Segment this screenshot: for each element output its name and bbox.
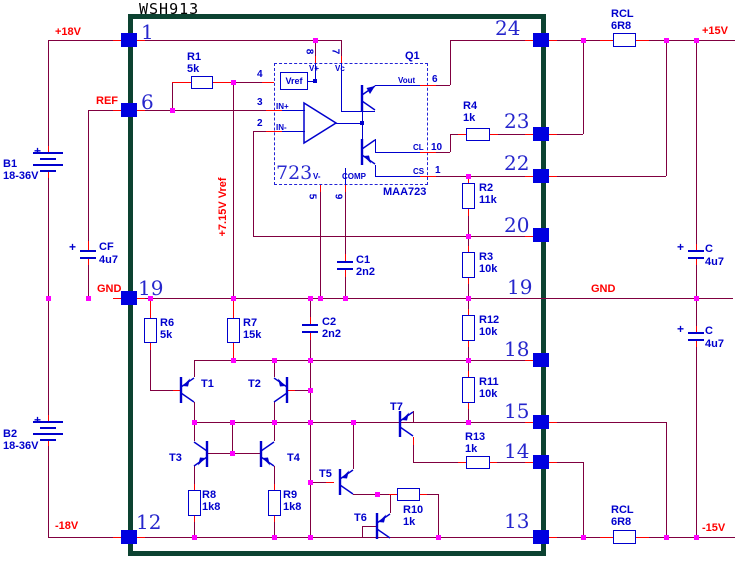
wire — [450, 40, 451, 85]
wire — [696, 265, 697, 298]
wire — [137, 298, 733, 299]
label-power_labels-ref: REF — [96, 95, 118, 107]
wire — [666, 40, 667, 176]
pin-13-pad — [533, 530, 549, 544]
transistor-t3 — [189, 438, 213, 470]
wire — [450, 40, 533, 41]
junction-dot — [351, 420, 356, 425]
lead — [525, 134, 533, 135]
label-ic-pin_numbers-n10: 10 — [431, 142, 442, 153]
lead — [420, 85, 436, 86]
label-ic-label: 723 — [276, 162, 312, 184]
wire — [666, 422, 667, 537]
label-package_pins-right-p22: 22 — [504, 151, 529, 175]
lead — [266, 110, 274, 111]
junction-dot — [231, 358, 236, 363]
label-capacitors-c1-ref: C1 — [356, 254, 370, 266]
wire — [48, 446, 49, 537]
ic-wire — [375, 85, 420, 86]
wire — [436, 176, 533, 177]
lead — [549, 537, 557, 538]
junction-dot — [192, 535, 197, 540]
pin-14-pad — [533, 455, 549, 469]
label-ic-pin_numbers-n8: 8 — [303, 49, 314, 55]
lead — [274, 516, 275, 522]
resistor-body-icon — [144, 318, 157, 343]
battery-plate-icon — [40, 439, 56, 441]
lead — [137, 537, 145, 538]
junction-dot — [343, 296, 348, 301]
label-package_pins-left-p6: 6 — [141, 90, 154, 114]
lead — [345, 185, 346, 192]
lead — [696, 341, 697, 347]
transistor-t2 — [269, 374, 293, 406]
wire — [696, 298, 697, 326]
wire — [345, 192, 346, 254]
resistor-body-icon — [462, 315, 475, 341]
transistor-t6 — [371, 510, 395, 542]
ic-wire — [375, 152, 420, 153]
junction-dot — [436, 535, 441, 540]
transistor-t1 — [175, 374, 199, 406]
junction-dot — [466, 420, 471, 425]
label-ic-pin_numbers-n1: 1 — [435, 165, 441, 176]
lead — [345, 270, 346, 277]
resistor-body-icon — [613, 530, 636, 544]
capacitor-plate-icon — [337, 268, 353, 270]
junction-dot — [313, 38, 318, 43]
label-transistors-t4: T4 — [287, 452, 300, 464]
label-capacitors-c_top_right-value: 4u7 — [705, 256, 724, 268]
junction-dot — [466, 358, 471, 363]
lead — [320, 185, 321, 192]
schematic-canvas: Vref WSH913+18VREFGND-18V+15VGND-15VB118… — [0, 0, 747, 567]
junction-dot — [272, 535, 277, 540]
label-package_pins-right-p13: 13 — [504, 509, 529, 533]
lead — [310, 317, 311, 324]
lead — [262, 82, 274, 83]
lead — [310, 333, 311, 340]
label-resistors-r1-value: 5k — [187, 63, 199, 75]
wire — [88, 265, 89, 298]
label-transistors-t3: T3 — [169, 452, 182, 464]
label-transistors-t5: T5 — [319, 468, 332, 480]
lead — [194, 516, 195, 522]
junction-dot — [466, 296, 471, 301]
lead — [525, 176, 533, 177]
wire — [549, 176, 666, 177]
vref-block: Vref — [280, 72, 308, 90]
wire — [362, 526, 363, 537]
lead — [468, 341, 469, 347]
label-power_labels-minus15: -15V — [702, 522, 725, 534]
junction-dot — [694, 38, 699, 43]
label-package_pins-left-p1: 1 — [141, 20, 154, 44]
label-ic-pin_names-vout: Vout — [398, 76, 415, 85]
lead — [468, 403, 469, 409]
junction-dot — [192, 420, 197, 425]
label-ic-pin_numbers-n9: 9 — [332, 194, 343, 200]
junction-dot — [375, 492, 380, 497]
wire — [48, 298, 49, 415]
label-resistors-r2-value: 11k — [479, 194, 497, 206]
resistor-body-icon — [462, 252, 475, 278]
label-capacitors-cf-ref: CF — [99, 241, 114, 253]
pin-22-pad — [533, 169, 549, 183]
wire — [233, 82, 234, 298]
wire — [137, 110, 274, 111]
junction-dot — [466, 234, 471, 239]
wire — [436, 85, 450, 86]
label-resistors-r11-ref: R11 — [479, 376, 499, 388]
label-capacitors-c_bottom_right-polarity: + — [677, 322, 684, 336]
wire — [194, 360, 533, 361]
junction-dot — [694, 535, 699, 540]
label-ic-pin_numbers-n2: 2 — [257, 118, 263, 129]
lead — [468, 278, 469, 284]
ic-wire — [375, 176, 420, 177]
wire — [48, 40, 121, 41]
pin-24-pad — [533, 33, 549, 47]
battery-plate-icon — [33, 164, 63, 166]
resistor-body-icon — [466, 456, 490, 469]
wire — [438, 494, 439, 537]
label-package_pins-right-p23: 23 — [504, 109, 529, 133]
label-resistors-r9-value: 1k8 — [283, 501, 301, 513]
label-resistors-r12-value: 10k — [479, 326, 497, 338]
ic-node-dot — [313, 79, 317, 83]
label-resistors-r8-ref: R8 — [202, 489, 216, 501]
junction-dot — [230, 451, 235, 456]
wire — [353, 422, 354, 469]
resistor-body-icon — [191, 76, 213, 89]
label-vref-rail: +7.15V Vref — [217, 152, 229, 262]
lead — [600, 40, 613, 41]
wire — [549, 422, 666, 423]
label-package_pins-right-p19: 19 — [507, 275, 532, 299]
label-capacitors-c2-ref: C2 — [322, 316, 336, 328]
label-batteries-b1-value: 18-36V — [3, 170, 38, 182]
wire — [48, 178, 49, 298]
pin-19-left-pad — [121, 291, 137, 305]
lead — [600, 537, 613, 538]
label-capacitors-c_bottom_right-ref: C — [705, 325, 713, 337]
battery-plate-icon — [40, 427, 56, 429]
junction-dot — [694, 296, 699, 301]
label-ic-pin_numbers-n3: 3 — [257, 97, 263, 108]
lead — [458, 134, 466, 135]
label-capacitors-c1-value: 2n2 — [356, 266, 375, 278]
label-batteries-b1-polarity: + — [34, 144, 41, 158]
label-package_pins-right-p24: 24 — [495, 16, 520, 40]
ic-output-transistor — [356, 82, 380, 114]
lead — [48, 172, 49, 178]
lead — [549, 40, 557, 41]
label-resistors-r12-ref: R12 — [479, 314, 499, 326]
ic-wire — [336, 123, 362, 124]
label-capacitors-c_bottom_right-value: 4u7 — [705, 338, 724, 350]
junction-dot — [46, 296, 51, 301]
label-resistors-r7-value: 15k — [243, 329, 261, 341]
capacitor-plate-icon — [80, 257, 96, 259]
label-batteries-b1-ref: B1 — [3, 158, 17, 170]
wire — [468, 216, 469, 236]
lead — [549, 134, 557, 135]
label-transistors-t6: T6 — [354, 512, 367, 524]
label-resistors-r10-ref: R10 — [403, 504, 423, 516]
label-power_labels-plus15: +15V — [702, 25, 728, 37]
label-capacitors-c2-value: 2n2 — [322, 328, 341, 340]
junction-dot — [231, 80, 236, 85]
label-resistors-r4-value: 1k — [463, 112, 475, 124]
junction-dot — [466, 174, 471, 179]
junction-dot — [272, 420, 277, 425]
wire — [341, 40, 342, 56]
label-ic-pin_names-v_minus: V- — [313, 172, 321, 181]
lead — [525, 40, 533, 41]
capacitor-plate-icon — [80, 250, 96, 252]
wire — [450, 134, 451, 152]
label-power_labels-minus18: -18V — [55, 520, 78, 532]
capacitor-plate-icon — [688, 250, 704, 252]
pin-15-pad — [533, 415, 549, 429]
resistor-body-icon — [397, 488, 420, 501]
lead — [490, 462, 497, 463]
pin-18-pad — [533, 353, 549, 367]
junction-dot — [581, 535, 586, 540]
label-resistors-r2-ref: R2 — [479, 182, 493, 194]
label-resistors-r1-ref: R1 — [187, 51, 201, 63]
junction-dot — [664, 535, 669, 540]
lead — [326, 482, 334, 483]
label-resistors-r3-value: 10k — [479, 263, 497, 275]
wire — [310, 340, 311, 537]
label-package_pins-right-p18: 18 — [504, 337, 529, 361]
wire — [194, 422, 533, 423]
wire — [583, 462, 584, 537]
lead — [549, 462, 557, 463]
transistor-t5 — [334, 466, 358, 498]
label-ic-designator: Q1 — [405, 50, 420, 62]
label-capacitors-cf-polarity: + — [69, 240, 76, 254]
lead — [549, 422, 557, 423]
junction-dot — [308, 388, 313, 393]
label-ic-part: MAA723 — [383, 186, 426, 198]
label-title: WSH913 — [139, 0, 199, 18]
battery-plate-icon — [33, 433, 63, 435]
label-resistors-r7-ref: R7 — [243, 317, 257, 329]
label-batteries-b2-value: 18-36V — [3, 440, 38, 452]
label-power_labels-plus18: +18V — [55, 26, 81, 38]
wire — [413, 445, 414, 462]
label-resistors-r6-ref: R6 — [160, 317, 174, 329]
junction-dot — [308, 480, 313, 485]
battery-plate-icon — [40, 158, 56, 160]
wire — [583, 40, 584, 134]
label-resistors-r13-ref: R13 — [465, 431, 485, 443]
label-package_pins-left-p19: 19 — [138, 276, 163, 300]
lead — [549, 176, 557, 177]
resistor-body-icon — [613, 33, 636, 47]
label-transistors-t2: T2 — [248, 378, 261, 390]
wire — [696, 347, 697, 537]
label-capacitors-cf-value: 4u7 — [99, 254, 118, 266]
resistor-body-icon — [268, 490, 281, 516]
junction-dot — [308, 358, 313, 363]
lead — [315, 56, 316, 63]
wire — [48, 40, 49, 146]
lead — [150, 343, 151, 350]
lead — [113, 537, 121, 538]
junction-dot — [581, 38, 586, 43]
wire — [427, 494, 438, 495]
junction-dot — [230, 420, 235, 425]
lead — [458, 462, 466, 463]
label-resistors-r11-value: 10k — [479, 388, 497, 400]
battery-plate-icon — [40, 170, 56, 172]
label-ic-pin_numbers-n7: 7 — [329, 49, 340, 55]
lead — [213, 82, 233, 83]
junction-dot — [318, 296, 323, 301]
ic-limit-transistor — [356, 136, 380, 168]
lead — [88, 241, 89, 250]
label-power_labels-gnd_right: GND — [591, 283, 615, 295]
label-package_pins-right-p14: 14 — [504, 439, 529, 463]
label-resistors-r4-ref: R4 — [463, 100, 477, 112]
lead — [468, 209, 469, 216]
resistor-body-icon — [188, 490, 201, 516]
wire — [232, 422, 233, 453]
label-resistors-rcl_bottom-ref: RCL — [611, 504, 634, 516]
pin-1-pad — [121, 33, 137, 47]
label-package_pins-right-p20: 20 — [504, 213, 529, 237]
label-capacitors-c_top_right-ref: C — [705, 243, 713, 255]
lead — [266, 131, 274, 132]
pin-6-pad — [121, 103, 137, 117]
label-resistors-rcl_bottom-value: 6R8 — [611, 516, 631, 528]
wire — [233, 82, 262, 83]
wire — [320, 192, 321, 298]
transistor-t4 — [255, 438, 279, 470]
resistor-body-icon — [462, 377, 475, 403]
label-power_labels-gnd_left: GND — [97, 283, 121, 295]
lead — [420, 494, 427, 495]
lead — [420, 176, 436, 177]
wire — [345, 277, 346, 298]
capacitor-plate-icon — [688, 257, 704, 259]
label-resistors-rcl_top-value: 6R8 — [611, 20, 631, 32]
lead — [345, 254, 346, 261]
label-resistors-r6-value: 5k — [160, 329, 172, 341]
label-ic-pin_names-vc: Vc — [335, 64, 345, 73]
wire — [137, 40, 341, 41]
capacitor-plate-icon — [302, 324, 318, 326]
lead — [696, 259, 697, 265]
label-transistors-t1: T1 — [201, 378, 214, 390]
label-ic-pin_numbers-n5: 5 — [306, 194, 317, 200]
label-batteries-b2-ref: B2 — [3, 428, 17, 440]
capacitor-plate-icon — [337, 261, 353, 263]
wire — [696, 40, 697, 244]
label-ic-pin_names-in_minus: IN- — [276, 123, 287, 132]
ic-node-dot — [360, 121, 364, 125]
resistor-body-icon — [227, 318, 240, 343]
pin-23-pad — [533, 127, 549, 141]
label-ic-pin_names-v_plus: V+ — [309, 64, 319, 73]
label-ic-pin_numbers-n4: 4 — [257, 69, 263, 80]
label-resistors-r9-ref: R9 — [283, 489, 297, 501]
junction-dot — [308, 296, 313, 301]
label-ic-pin_names-in_plus: IN+ — [276, 102, 289, 111]
label-capacitors-c_top_right-polarity: + — [677, 240, 684, 254]
lead — [150, 298, 151, 318]
wire — [253, 236, 533, 237]
capacitor-plate-icon — [688, 339, 704, 341]
wire — [253, 131, 254, 236]
lead — [113, 40, 121, 41]
junction-dot — [272, 358, 277, 363]
wire — [150, 350, 151, 390]
label-ic-pin_names-cs: CS — [413, 167, 424, 176]
lead — [113, 110, 121, 111]
capacitor-plate-icon — [302, 331, 318, 333]
lead — [88, 259, 89, 265]
label-resistors-r10-value: 1k — [403, 516, 415, 528]
lead — [490, 134, 498, 135]
label-package_pins-right-p15: 15 — [504, 399, 529, 423]
label-transistors-t7: T7 — [390, 401, 403, 413]
capacitor-plate-icon — [688, 332, 704, 334]
lead — [636, 537, 649, 538]
resistor-body-icon — [466, 128, 490, 141]
lead — [389, 494, 397, 495]
junction-dot — [86, 296, 91, 301]
wire — [88, 110, 89, 241]
junction-dot — [231, 296, 236, 301]
label-resistors-r8-value: 1k8 — [202, 501, 220, 513]
pin-20-pad — [533, 228, 549, 242]
junction-dot — [308, 535, 313, 540]
lead — [341, 56, 342, 63]
wire — [48, 537, 121, 538]
lead — [113, 298, 121, 299]
label-ic-pin_numbers-n6: 6 — [432, 74, 438, 85]
label-resistors-rcl_top-ref: RCL — [611, 8, 634, 20]
resistor-body-icon — [462, 183, 475, 209]
junction-dot — [170, 108, 175, 113]
label-ic-pin_names-cl: CL — [413, 143, 424, 152]
label-resistors-r13-value: 1k — [465, 443, 477, 455]
junction-dot — [664, 38, 669, 43]
pin-12-pad — [121, 530, 137, 544]
lead — [233, 298, 234, 318]
lead — [636, 40, 649, 41]
label-resistors-r3-ref: R3 — [479, 251, 493, 263]
junction-dot — [308, 420, 313, 425]
label-package_pins-left-p12: 12 — [136, 510, 161, 534]
label-batteries-b2-polarity: + — [34, 413, 41, 427]
lead — [172, 82, 191, 83]
label-ic-pin_names-comp: COMP — [342, 172, 366, 181]
wire — [172, 82, 173, 110]
